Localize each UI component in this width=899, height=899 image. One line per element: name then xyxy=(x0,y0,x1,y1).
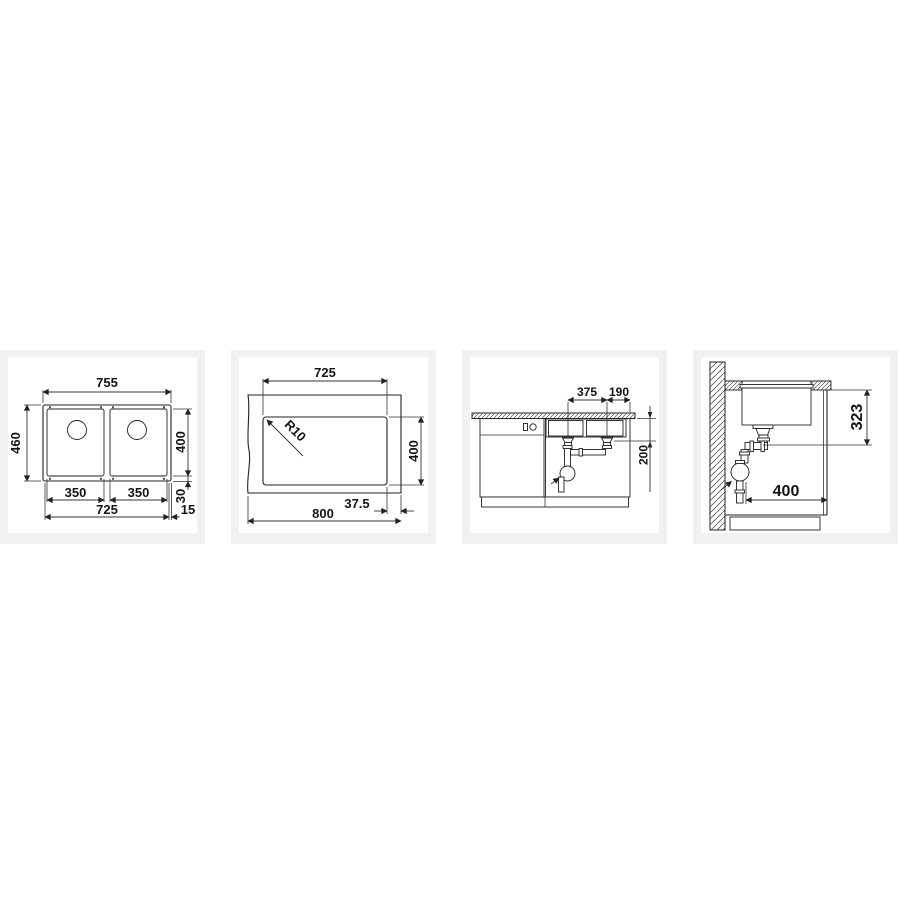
appliance-icon-square xyxy=(524,424,528,431)
dim-drain-to-edge: 190 xyxy=(609,385,629,399)
page: { "colors": { "page_bg": "#ffffff", "car… xyxy=(0,0,899,899)
dim-cutout-width: 725 xyxy=(314,365,336,380)
panel-top-view-double-bowl: 755 460 400 30 350 350 725 15 xyxy=(0,350,205,544)
siphon-trap xyxy=(731,463,749,481)
dim-outlet-drop: 200 xyxy=(637,445,651,465)
dim-overall-width: 755 xyxy=(96,375,118,390)
drain-pipe-left xyxy=(565,447,571,469)
drain-hole-right xyxy=(128,421,147,440)
worktop-section xyxy=(472,413,635,419)
sink-outline xyxy=(43,405,171,481)
dim-bowl-depth: 400 xyxy=(173,431,188,453)
dim-overall-depth: 460 xyxy=(8,432,23,454)
sink-rim xyxy=(740,385,813,389)
panel-worktop-cutout: R10 725 400 37.5 800 xyxy=(231,350,436,544)
technical-drawing-side: 323 400 xyxy=(693,350,898,544)
dim-bowl-width-right: 350 xyxy=(128,485,150,500)
connecting-pipe xyxy=(571,450,606,456)
dim-outlet-depth: 323 xyxy=(849,404,866,431)
drain-hole-left xyxy=(68,421,87,440)
appliance-icon-circle xyxy=(530,424,536,430)
outlet-pipe xyxy=(559,477,565,492)
dim-worktop-width: 800 xyxy=(312,506,334,521)
panel-side-view: 323 400 xyxy=(693,350,898,544)
dim-cabinet-depth: 400 xyxy=(773,483,800,500)
worktop-right xyxy=(811,381,831,390)
technical-drawing-top-view: 755 460 400 30 350 350 725 15 xyxy=(0,350,205,544)
plinth xyxy=(482,497,629,507)
dim-cutout-depth: 400 xyxy=(406,440,421,462)
technical-drawing-front: 375 190 200 xyxy=(462,350,667,544)
dim-bowl-width-left: 350 xyxy=(65,485,87,500)
dim-drain-spacing: 375 xyxy=(577,385,597,399)
dim-side-offset: 37.5 xyxy=(344,496,369,511)
panel-front-view: 375 190 200 xyxy=(462,350,667,544)
wall-section xyxy=(710,362,725,530)
drain-left xyxy=(563,438,574,443)
dim-side-edge: 15 xyxy=(181,502,195,517)
plinth xyxy=(730,517,820,530)
dim-cutout-width: 725 xyxy=(96,502,118,517)
technical-drawing-cutout: R10 725 400 37.5 800 xyxy=(231,350,436,544)
drain-right xyxy=(602,438,613,443)
worktop-left xyxy=(725,381,742,390)
bowl xyxy=(742,388,811,425)
worktop-outline: R10 xyxy=(248,395,401,493)
